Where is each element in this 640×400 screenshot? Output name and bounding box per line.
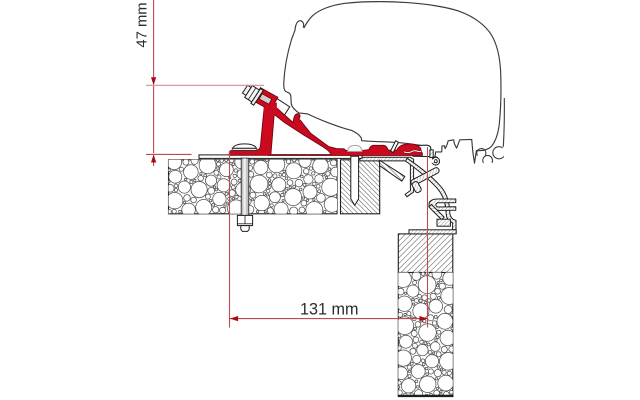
svg-text:47 mm: 47 mm (135, 2, 151, 47)
svg-text:131 mm: 131 mm (300, 301, 358, 319)
